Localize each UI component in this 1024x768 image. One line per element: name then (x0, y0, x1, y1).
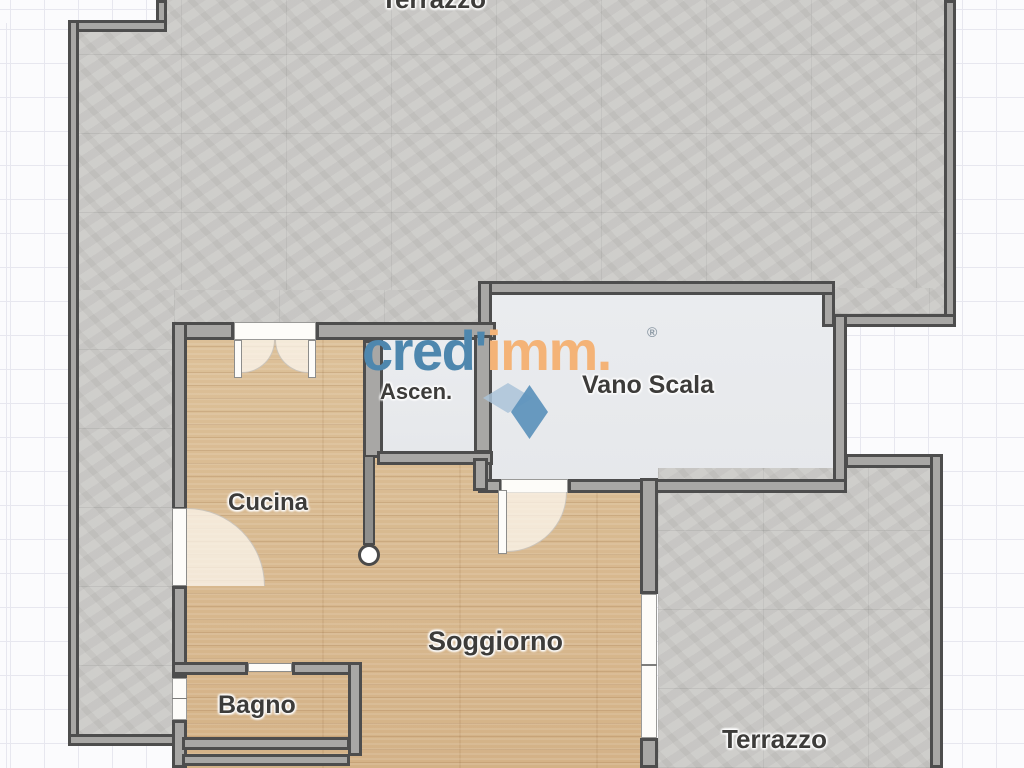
room-label-soggiorno: Soggiorno (428, 626, 563, 657)
bathroom-window (172, 678, 187, 720)
wall-livingroom-right-upper (640, 478, 658, 594)
entry-door-opening (501, 479, 568, 493)
floor-plan: Terrazzo Ascen. Vano Scala Cucina Soggio… (0, 0, 1024, 768)
wall-stairwell-top (485, 281, 835, 295)
room-label-cucina: Cucina (228, 489, 308, 517)
balcony-door-opening (234, 322, 316, 340)
wall-below-bathroom (182, 754, 350, 766)
terrace-top-floor (76, 0, 946, 292)
terrace-right-floor (658, 468, 932, 768)
wall-kitchen-divider (363, 455, 375, 545)
registered-trademark-icon: ® (647, 324, 657, 340)
bathroom-window-mullion (172, 698, 187, 699)
wall-apartment-left-upper (172, 322, 187, 510)
room-label-terrazzo-top: Terrazzo (381, 0, 486, 15)
wall-terrace-right-top (845, 454, 943, 468)
watermark-text-imm: imm. (486, 319, 611, 382)
balcony-door-leaf-right (308, 340, 316, 378)
terrace-left-strip-floor (76, 290, 174, 745)
wall (832, 314, 956, 327)
livingroom-window (641, 594, 657, 738)
wall (68, 20, 79, 746)
watermark-wordmark: cred'imm. (362, 326, 611, 376)
kitchen-door-leaf (172, 508, 187, 586)
wall-bathroom-right (348, 662, 362, 756)
wall (944, 0, 956, 326)
wall-terrace-right-side (930, 454, 943, 768)
watermark-logo: cred'imm. ® (362, 326, 682, 446)
room-label-terrazzo-right: Terrazzo (722, 724, 827, 755)
livingroom-window-mullion (641, 664, 657, 666)
balcony-door-leaf-left (234, 340, 242, 378)
wall-bathroom-top-left (172, 662, 248, 675)
wall-bathroom-bottom (182, 737, 350, 750)
wall (473, 458, 488, 491)
column (358, 544, 380, 566)
wall-livingroom-right-lower (640, 738, 658, 768)
wall (68, 20, 167, 32)
wall (68, 734, 186, 746)
entry-door-leaf (498, 490, 507, 554)
room-label-bagno: Bagno (218, 691, 296, 720)
terrace-top-floor-lower-right (824, 288, 946, 314)
watermark-text-cred: cred' (362, 319, 486, 382)
bathroom-sliding-door (248, 663, 292, 672)
wall-stairwell-bottom (568, 479, 847, 493)
